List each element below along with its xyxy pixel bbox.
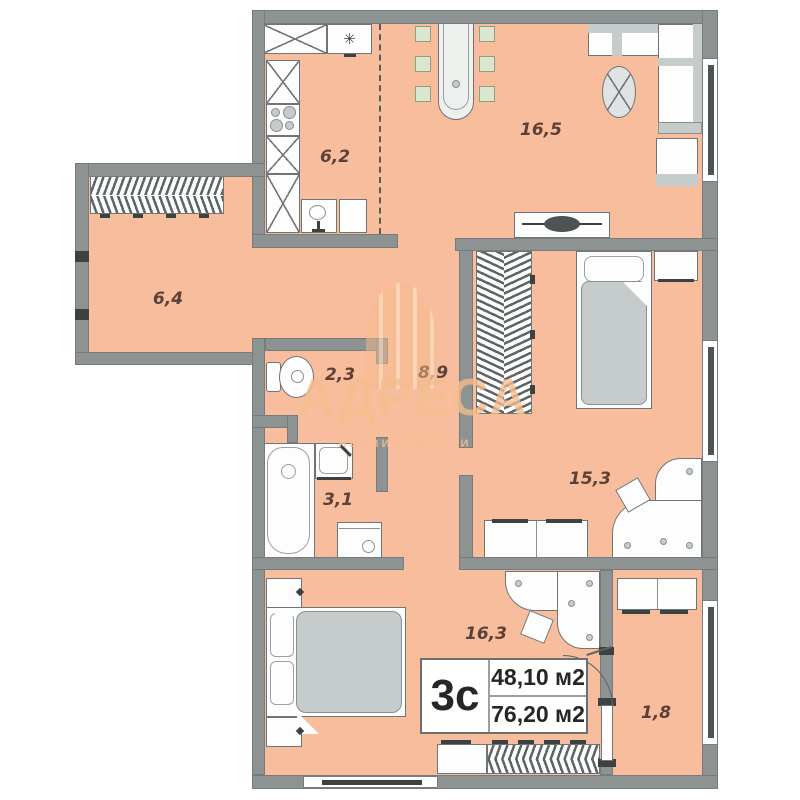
room-label-bedroom-bottom: 16,3 — [465, 624, 507, 644]
kitchen-cabinet-1 — [266, 60, 300, 104]
balcony-cabinet-mark — [622, 610, 650, 614]
coffee-table — [602, 66, 636, 118]
wall-hallway-top — [75, 163, 265, 177]
wall-corridor-right-upper — [459, 238, 473, 448]
balcony-cabinet-mark — [660, 610, 688, 614]
kitchen-cabinet-3 — [266, 174, 300, 233]
dining-table-inner — [443, 22, 469, 110]
washing-machine-panel — [339, 528, 380, 529]
unit-type-label: 3с — [422, 660, 490, 732]
living-area-value: 48,10 м2 — [490, 660, 586, 697]
cabinet-mark — [441, 740, 471, 744]
window-balcony — [702, 600, 718, 745]
room-label-corridor: 8,9 — [418, 363, 448, 383]
kitchen-faucet-bar — [312, 229, 325, 232]
kitchen-living-divider — [379, 24, 381, 234]
total-area-value: 76,20 м2 — [490, 697, 586, 732]
single-bed-pillow — [584, 256, 644, 282]
bottom-cabinet — [437, 744, 487, 774]
wall-hallway-bottom — [75, 352, 265, 365]
kitchen-counter-top — [263, 24, 327, 54]
desk-leg — [624, 542, 631, 549]
dining-chair — [479, 26, 495, 42]
closet-knob — [530, 275, 535, 284]
closet-knob — [530, 330, 535, 339]
closet-knob — [530, 385, 535, 394]
bottom-wardrobe-hangers-bottom — [488, 759, 599, 773]
room-label-bedroom-right: 15,3 — [569, 469, 611, 489]
kitchen-sink-bowl — [309, 205, 326, 220]
double-bed-blanket — [296, 611, 402, 713]
wardrobe-mark — [544, 740, 560, 744]
wall-bathroom-top-stub — [287, 415, 298, 443]
wall-hallway-left — [75, 163, 89, 365]
room-label-kitchen: 6,2 — [320, 147, 350, 167]
window-bedroom-bottom-glass — [322, 780, 422, 785]
wardrobe-foot — [166, 214, 176, 218]
info-box: 3с 48,10 м2 76,20 м2 — [420, 658, 588, 734]
sofa-armrest — [658, 122, 702, 134]
closet-hangers-left — [477, 252, 504, 413]
dining-chair — [415, 86, 431, 102]
desk-leg — [586, 580, 593, 587]
wall-left-upper — [252, 10, 265, 248]
room-label-living: 16,5 — [520, 120, 562, 140]
toilet-bowl-center — [291, 370, 304, 383]
stove-burner — [285, 121, 294, 130]
wall-bedroom-right-top — [455, 238, 718, 251]
dining-table-leg — [452, 80, 460, 88]
room-label-hallway: 6,4 — [153, 289, 183, 309]
wall-kitchen-bottom — [252, 234, 398, 248]
sofa-right-backrest — [693, 24, 702, 134]
wall-bathroom-right — [376, 437, 388, 492]
room-label-bathroom: 3,1 — [323, 490, 353, 510]
dining-chair — [479, 86, 495, 102]
wall-between-bedrooms — [459, 557, 718, 570]
desk-leg — [515, 580, 522, 587]
wall-top-exterior — [252, 10, 718, 24]
balcony-cabinet-divider — [657, 579, 658, 609]
dining-chair — [415, 26, 431, 42]
wall-corridor-right-lower — [459, 475, 473, 560]
stove-burner — [270, 119, 283, 132]
corner-desk-bottom-ext — [557, 571, 600, 649]
bathroom-sink-edge — [317, 477, 351, 480]
wardrobe-mark — [570, 740, 586, 744]
blanket-fold — [623, 282, 647, 306]
sofa-right-divider — [658, 58, 693, 66]
room-label-balcony: 1,8 — [641, 703, 671, 723]
bedside-shelf-edge — [658, 279, 694, 282]
wall-wc-door-stub — [376, 338, 388, 364]
closet-hangers-right — [504, 252, 531, 413]
fridge: ✳ — [327, 24, 372, 54]
armchair-seat-edge — [656, 174, 698, 186]
bottom-wardrobe-hangers-top — [488, 745, 599, 759]
desk-leg — [568, 600, 575, 607]
blanket-fold — [275, 612, 297, 634]
wall-wc-top — [265, 338, 378, 351]
kitchen-counter-sink-side — [339, 199, 367, 233]
wardrobe-foot — [199, 214, 209, 218]
entry-door-frame-mark — [75, 251, 89, 262]
bench-divider — [536, 521, 537, 557]
info-box-areas: 48,10 м2 76,20 м2 — [490, 660, 586, 732]
tv — [544, 216, 580, 232]
bedside-shelf — [654, 251, 698, 281]
bathtub-drain — [281, 464, 296, 479]
sofa-top-divider — [612, 24, 622, 56]
wardrobe-foot — [133, 214, 143, 218]
floor-plan: ✳ — [0, 0, 800, 800]
wardrobe-foot — [100, 214, 110, 218]
stove-burner — [283, 106, 296, 119]
washing-machine-door — [362, 540, 375, 553]
desk-leg — [660, 538, 667, 545]
bench-mark — [492, 519, 528, 523]
wall-bedroom-bottom-top — [252, 557, 404, 570]
window-bedroom-right — [702, 340, 718, 462]
desk-leg — [686, 468, 693, 475]
entry-door-frame-mark — [75, 309, 89, 320]
stove-burner — [271, 108, 280, 117]
desk-leg — [586, 634, 593, 641]
wardrobe-mark — [492, 740, 508, 744]
fridge-handle — [344, 54, 356, 57]
wardrobe-mark — [518, 740, 534, 744]
room-label-wc: 2,3 — [325, 365, 355, 385]
double-bed-pillow — [270, 661, 294, 705]
bench-mark — [546, 519, 582, 523]
hall-wardrobe-hangers-bottom — [91, 196, 223, 213]
dining-chair — [479, 56, 495, 72]
window-living-room — [702, 58, 718, 182]
balcony-door-leaf — [601, 705, 613, 761]
desk-leg — [686, 542, 693, 549]
dining-chair — [415, 56, 431, 72]
hall-wardrobe-hangers-top — [91, 177, 223, 195]
kitchen-cabinet-2 — [266, 136, 300, 174]
snowflake-icon: ✳ — [343, 30, 356, 48]
